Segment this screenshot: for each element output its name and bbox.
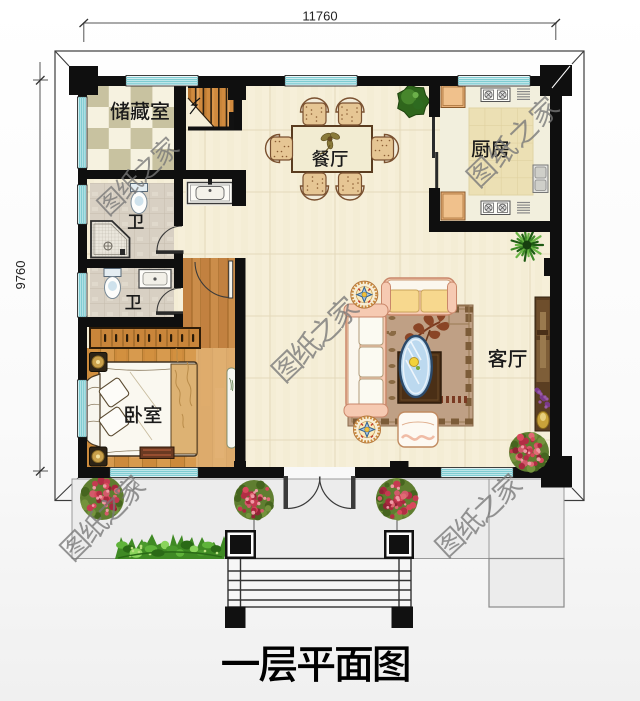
svg-text:9760: 9760 xyxy=(13,261,28,290)
svg-text:11760: 11760 xyxy=(302,9,337,24)
